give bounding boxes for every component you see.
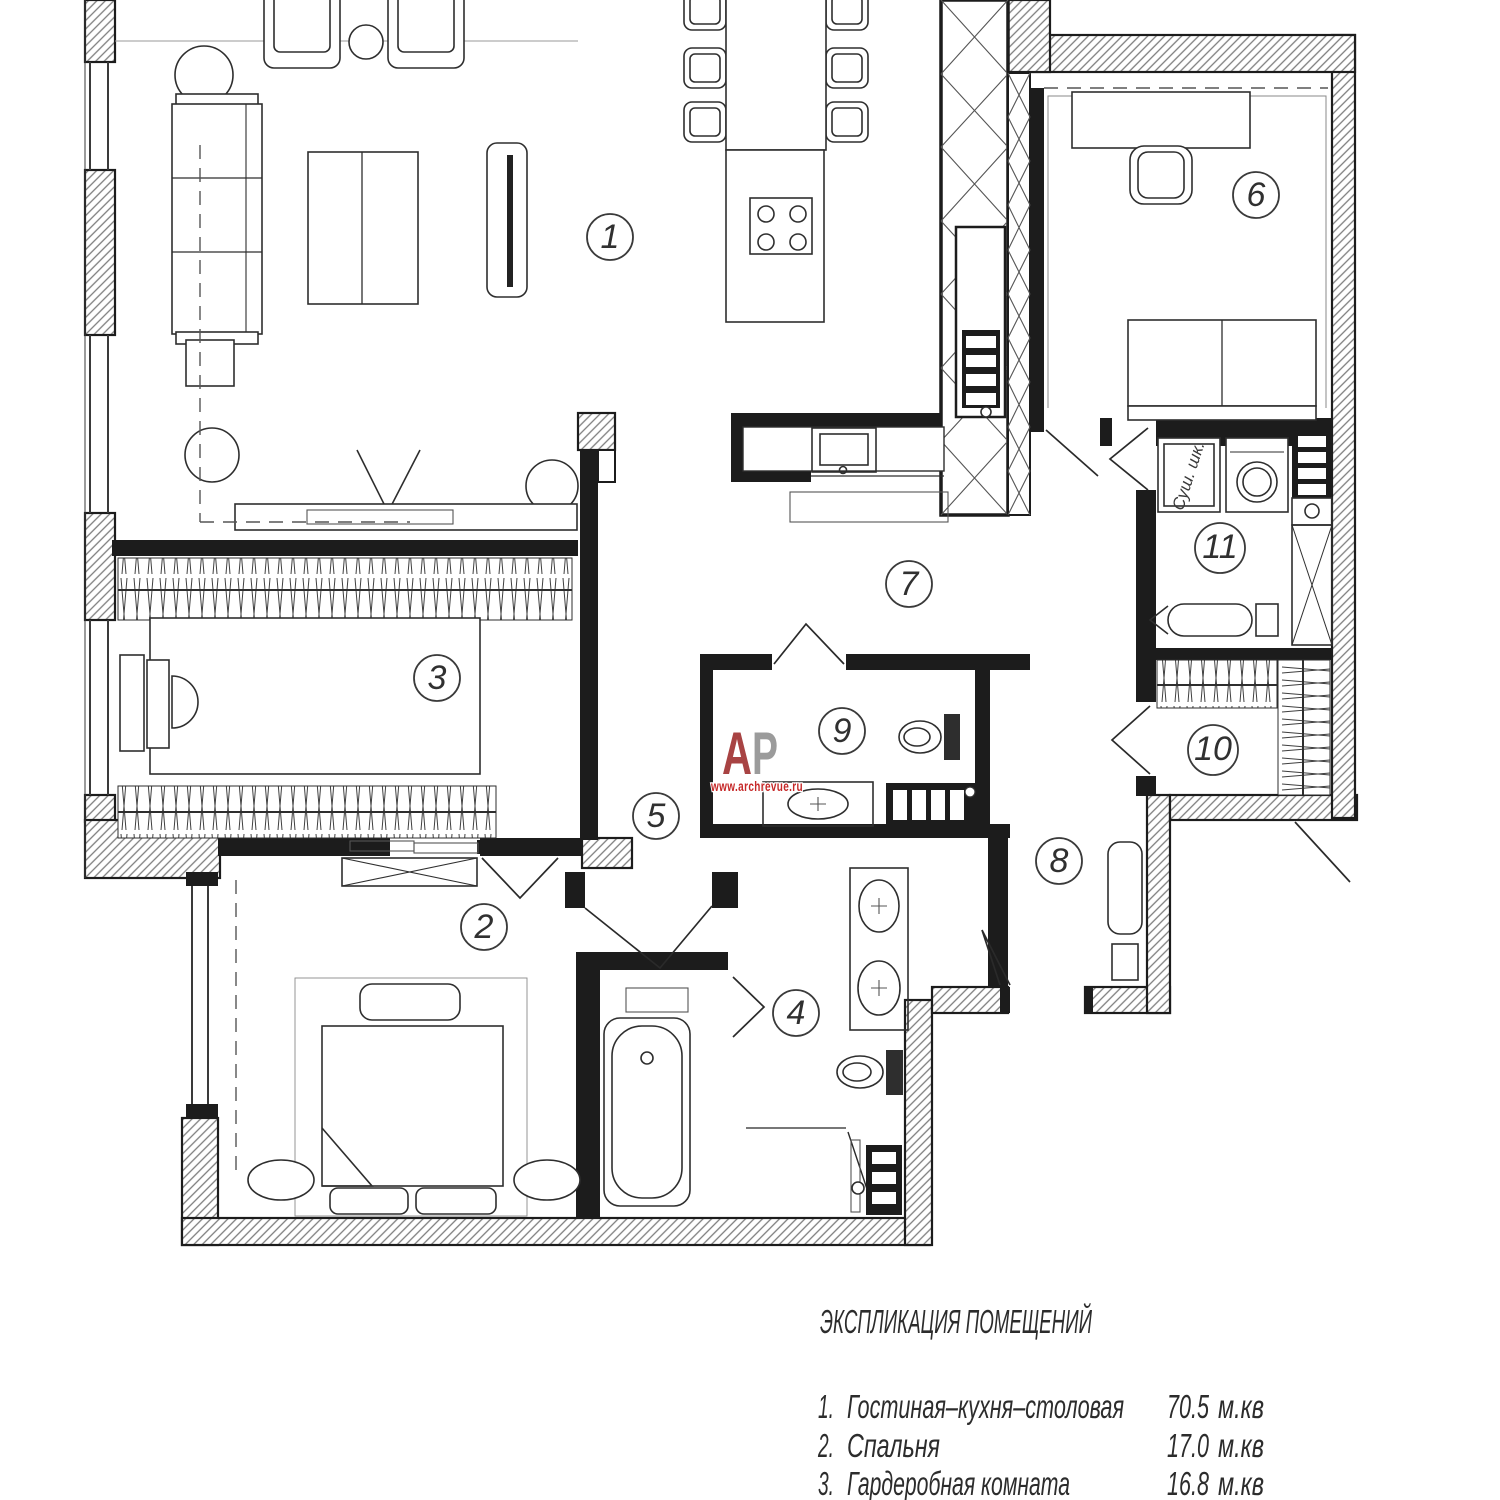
sofa (172, 104, 262, 334)
tv (507, 155, 513, 287)
room-label-11: 11 (1195, 523, 1245, 573)
legend-row-unit: м.кв (1218, 1388, 1264, 1425)
svg-text:3: 3 (428, 659, 447, 697)
legend-row-name: Спальня (847, 1427, 940, 1464)
legend-row: 1. Гостиная–кухня–столовая 70.5 м.кв (818, 1388, 1264, 1425)
desk-chair (1130, 146, 1192, 204)
svg-text:4: 4 (787, 994, 806, 1032)
svg-text:7: 7 (900, 565, 920, 603)
svg-text:9: 9 (833, 712, 852, 750)
pillow (330, 1188, 408, 1214)
room-label-7: 7 (886, 561, 932, 607)
room-label-9: 9 (819, 708, 865, 754)
nightstand (248, 1160, 314, 1200)
bench (1108, 842, 1142, 934)
legend-row-area: 70.5 (1167, 1388, 1209, 1425)
toilet-tank (944, 714, 960, 760)
side-table (349, 25, 383, 59)
dressing-desk (120, 655, 144, 751)
toilet (899, 721, 941, 753)
floor-plan-page: Суш. шк. (0, 0, 1500, 1500)
svg-text:2: 2 (474, 908, 494, 946)
legend-row-unit: м.кв (1218, 1427, 1264, 1464)
kitchen-island (726, 150, 824, 322)
svg-text:8: 8 (1050, 842, 1069, 880)
room-label-5: 5 (633, 793, 679, 839)
svg-text:6: 6 (1247, 176, 1266, 214)
armchair (264, 0, 340, 68)
bathtub (604, 1018, 690, 1206)
legend-title: ЭКСПЛИКАЦИЯ ПОМЕЩЕНИЙ (820, 1302, 1092, 1340)
room-label-1: 1 (587, 214, 633, 260)
window-bench (235, 504, 577, 530)
watermark-url: www.archrevue.ru (710, 778, 803, 794)
floor-plan-drawing: Суш. шк. (0, 0, 1500, 1500)
legend-row-num: 3. (818, 1465, 834, 1500)
desk (1072, 92, 1250, 148)
armchair (388, 0, 464, 68)
svg-text:10: 10 (1194, 730, 1232, 768)
legend-row-area: 17.0 (1167, 1427, 1209, 1464)
door-jamb (598, 450, 615, 482)
legend-row: 3. Гардеробная комната 16.8 м.кв (818, 1465, 1264, 1500)
room-label-6: 6 (1233, 172, 1279, 218)
svg-text:5: 5 (647, 797, 666, 835)
side-table (186, 340, 234, 386)
entry-hall-furniture (1108, 842, 1142, 980)
legend-row-unit: м.кв (1218, 1465, 1264, 1500)
svg-text:11: 11 (1202, 528, 1237, 566)
room-label-10: 10 (1188, 725, 1238, 775)
toilet-tank (886, 1050, 903, 1095)
watermark-letter-a: А (722, 720, 752, 787)
bed (322, 1026, 503, 1186)
dining-table (726, 0, 826, 150)
svg-text:1: 1 (601, 218, 620, 256)
room-label-3: 3 (414, 655, 460, 701)
legend-row-name: Гардеробная комната (847, 1465, 1070, 1500)
toilet (837, 1056, 883, 1088)
legend-row-name: Гостиная–кухня–столовая (847, 1388, 1124, 1425)
bed-bench (360, 984, 460, 1020)
room-label-4: 4 (773, 990, 819, 1036)
washing-machine (1226, 438, 1288, 512)
pouf (185, 428, 239, 482)
legend-row-num: 1. (818, 1388, 834, 1425)
legend-row-area: 16.8 (1167, 1465, 1209, 1500)
coffee-table (308, 152, 418, 304)
ironing-board (1168, 604, 1252, 636)
legend-row-num: 2. (817, 1427, 834, 1464)
nightstand (514, 1160, 580, 1200)
room-label-2: 2 (461, 904, 507, 950)
watermark-letter-p: Р (752, 720, 778, 787)
room-label-8: 8 (1036, 838, 1082, 884)
pillow (416, 1188, 496, 1214)
cabinet (1112, 944, 1138, 980)
